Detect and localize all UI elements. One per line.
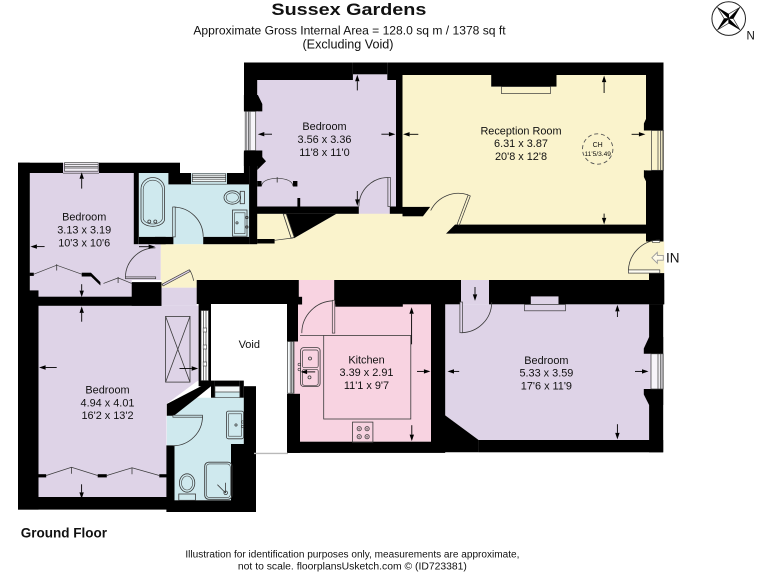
svg-text:(Excluding Void): (Excluding Void)	[302, 37, 393, 51]
svg-text:3.13 x 3.19: 3.13 x 3.19	[57, 225, 111, 237]
svg-text:Bedroom: Bedroom	[302, 121, 346, 133]
svg-text:N: N	[747, 31, 755, 43]
svg-text:Bedroom: Bedroom	[85, 384, 129, 396]
svg-text:4.94 x 4.01: 4.94 x 4.01	[81, 397, 135, 409]
svg-text:Reception Room: Reception Room	[480, 125, 561, 137]
svg-text:3.56 x 3.36: 3.56 x 3.36	[298, 134, 352, 146]
svg-text:11'8 x 11'0: 11'8 x 11'0	[299, 147, 349, 159]
svg-text:Illustration for identificatio: Illustration for identification purposes…	[185, 550, 519, 561]
svg-text:11'5/3.49: 11'5/3.49	[584, 151, 611, 158]
svg-text:not to scale. floorplansUsketc: not to scale. floorplansUsketch.com © (I…	[238, 562, 467, 573]
svg-text:17'6 x 11'9: 17'6 x 11'9	[521, 381, 572, 393]
svg-text:20'8 x 12'8: 20'8 x 12'8	[495, 151, 547, 163]
svg-text:16'2 x 13'2: 16'2 x 13'2	[82, 410, 134, 422]
svg-text:5.33 x 3.59: 5.33 x 3.59	[519, 368, 573, 380]
svg-text:Ground Floor: Ground Floor	[21, 526, 108, 541]
svg-text:Bedroom: Bedroom	[62, 212, 106, 224]
svg-text:6.31 x 3.87: 6.31 x 3.87	[494, 138, 548, 150]
svg-text:3.39 x 2.91: 3.39 x 2.91	[340, 367, 394, 379]
svg-text:11'1 x 9'7: 11'1 x 9'7	[344, 380, 389, 392]
svg-text:IN: IN	[666, 251, 680, 266]
svg-text:Approximate Gross Internal Are: Approximate Gross Internal Area = 128.0 …	[193, 23, 506, 37]
svg-text:CH: CH	[593, 142, 603, 149]
svg-text:10'3 x 10'6: 10'3 x 10'6	[58, 237, 110, 249]
svg-text:Kitchen: Kitchen	[348, 354, 384, 366]
svg-text:Bedroom: Bedroom	[524, 355, 568, 367]
svg-text:Void: Void	[239, 339, 260, 351]
svg-text:Sussex Gardens: Sussex Gardens	[271, 0, 426, 19]
